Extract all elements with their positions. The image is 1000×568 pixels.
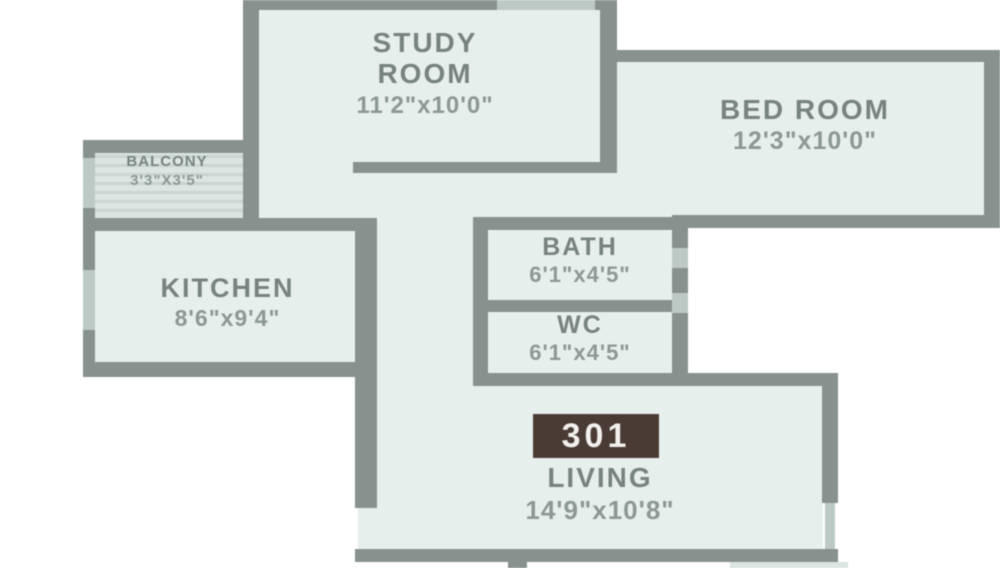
bath-vent-window <box>672 248 688 268</box>
bath-name: BATH <box>488 233 672 261</box>
entry-door-gap <box>358 508 377 549</box>
study-room-dimensions: 11'2"x10'0" <box>280 93 570 120</box>
bath-label: BATH 6'1"x4'5" <box>488 233 672 288</box>
bedroom-label: BED ROOM 12'3"x10'0" <box>640 94 970 155</box>
balcony-label: BALCONY 3'3"X3'5" <box>92 154 242 190</box>
living-bottom-wall <box>355 549 838 562</box>
study-window <box>497 0 595 10</box>
living-room-dimensions: 14'9"x10'8" <box>440 496 760 525</box>
kitchen-name: KITCHEN <box>105 273 350 303</box>
study-right-wall <box>600 0 617 173</box>
kitchen-bottom-wall <box>83 362 377 377</box>
wc-dimensions: 6'1"x4'5" <box>488 341 672 366</box>
bedroom-top-wall <box>617 50 1000 62</box>
bedroom-right-wall <box>984 50 1000 228</box>
lower-sitout-left <box>383 562 508 568</box>
study-bottom-wall <box>353 162 617 173</box>
study-room-name-line1: STUDY <box>280 27 570 58</box>
living-room-name: LIVING <box>440 462 760 493</box>
kitchen-top-wall <box>83 218 377 231</box>
wc-vent-window <box>672 293 688 313</box>
study-left-wall <box>243 0 259 228</box>
bedroom-name: BED ROOM <box>640 94 970 125</box>
bedroom-dimensions: 12'3"x10'0" <box>640 127 970 155</box>
study-room-name-line2: ROOM <box>280 58 570 89</box>
floor-plan: STUDY ROOM 11'2"x10'0" BED ROOM 12'3"x10… <box>0 0 1000 568</box>
kitchen-right-wall <box>355 218 377 508</box>
kitchen-dimensions: 8'6"x9'4" <box>105 306 350 332</box>
living-top-wall <box>473 373 835 386</box>
bath-top-wall <box>473 217 688 230</box>
study-room-label: STUDY ROOM 11'2"x10'0" <box>280 27 570 120</box>
living-side-window <box>825 503 835 549</box>
lower-sitout-right <box>730 562 848 568</box>
wc-label: WC 6'1"x4'5" <box>488 311 672 366</box>
unit-number-badge: 301 <box>533 414 659 458</box>
balcony-dimensions: 3'3"X3'5" <box>92 173 242 190</box>
balcony-name: BALCONY <box>92 154 242 171</box>
bedroom-bottom-wall <box>672 215 1000 228</box>
living-room-label: LIVING 14'9"x10'8" <box>440 462 760 525</box>
balcony-top-wall <box>83 140 259 153</box>
lower-sitout-center <box>527 562 727 568</box>
living-right-wall <box>822 373 838 503</box>
lower-wall-stub <box>508 562 527 568</box>
kitchen-label: KITCHEN 8'6"x9'4" <box>105 273 350 332</box>
kitchen-window <box>83 270 95 330</box>
wc-name: WC <box>488 311 672 339</box>
bath-dimensions: 6'1"x4'5" <box>488 263 672 288</box>
